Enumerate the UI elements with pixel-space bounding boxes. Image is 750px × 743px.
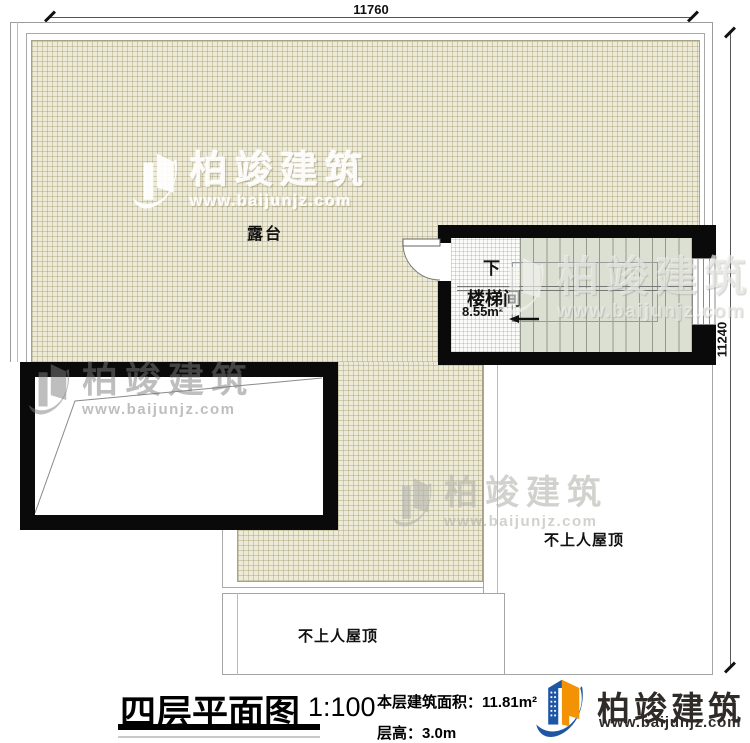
brand-logo-icon [531, 677, 591, 741]
brand-url: www.baijunjz.com [599, 714, 741, 731]
roof-bottom-label: 不上人屋顶 [298, 625, 378, 646]
right-dimension-value: 11240 [715, 300, 730, 380]
floor-height-value: 3.0m [422, 725, 456, 742]
stairwell-room: 下 楼梯间 8.55m² [438, 225, 716, 365]
right-dimension-line [730, 33, 731, 668]
floor-plan-canvas: 11760 11240 下 楼梯间 8.55m² [0, 0, 750, 743]
stair-direction-arrow [509, 314, 541, 324]
stair-direction-label: 下 [483, 254, 500, 279]
floor-area-label: 本层建筑面积： [377, 694, 482, 711]
title-underline [118, 724, 320, 730]
floor-area-text: 本层建筑面积：11.81m² [377, 691, 537, 712]
roof-right-label: 不上人屋顶 [544, 529, 624, 550]
roof-eave-inner-line [17, 22, 18, 362]
roof-area-bottom-inner-line [237, 593, 238, 675]
floor-area-value: 11.81m² [482, 694, 537, 711]
stair-flight-outline [512, 262, 658, 322]
title-underline-shadow [118, 736, 320, 738]
top-dimension-line [50, 17, 693, 18]
drawing-scale: 1:100 [308, 692, 376, 723]
stairwell-window [692, 258, 716, 325]
terrace-label: 露台 [247, 220, 283, 244]
floor-height-text: 层高：3.0m [377, 722, 456, 743]
roof-area-right [483, 362, 713, 675]
top-dimension-value: 11760 [331, 2, 411, 17]
floor-height-label: 层高： [377, 725, 422, 742]
stairwell-door [398, 238, 444, 288]
roof-volume-room [20, 362, 338, 530]
stairwell-area-label: 8.55m² [462, 304, 503, 319]
roof-slope-lines [35, 377, 323, 515]
